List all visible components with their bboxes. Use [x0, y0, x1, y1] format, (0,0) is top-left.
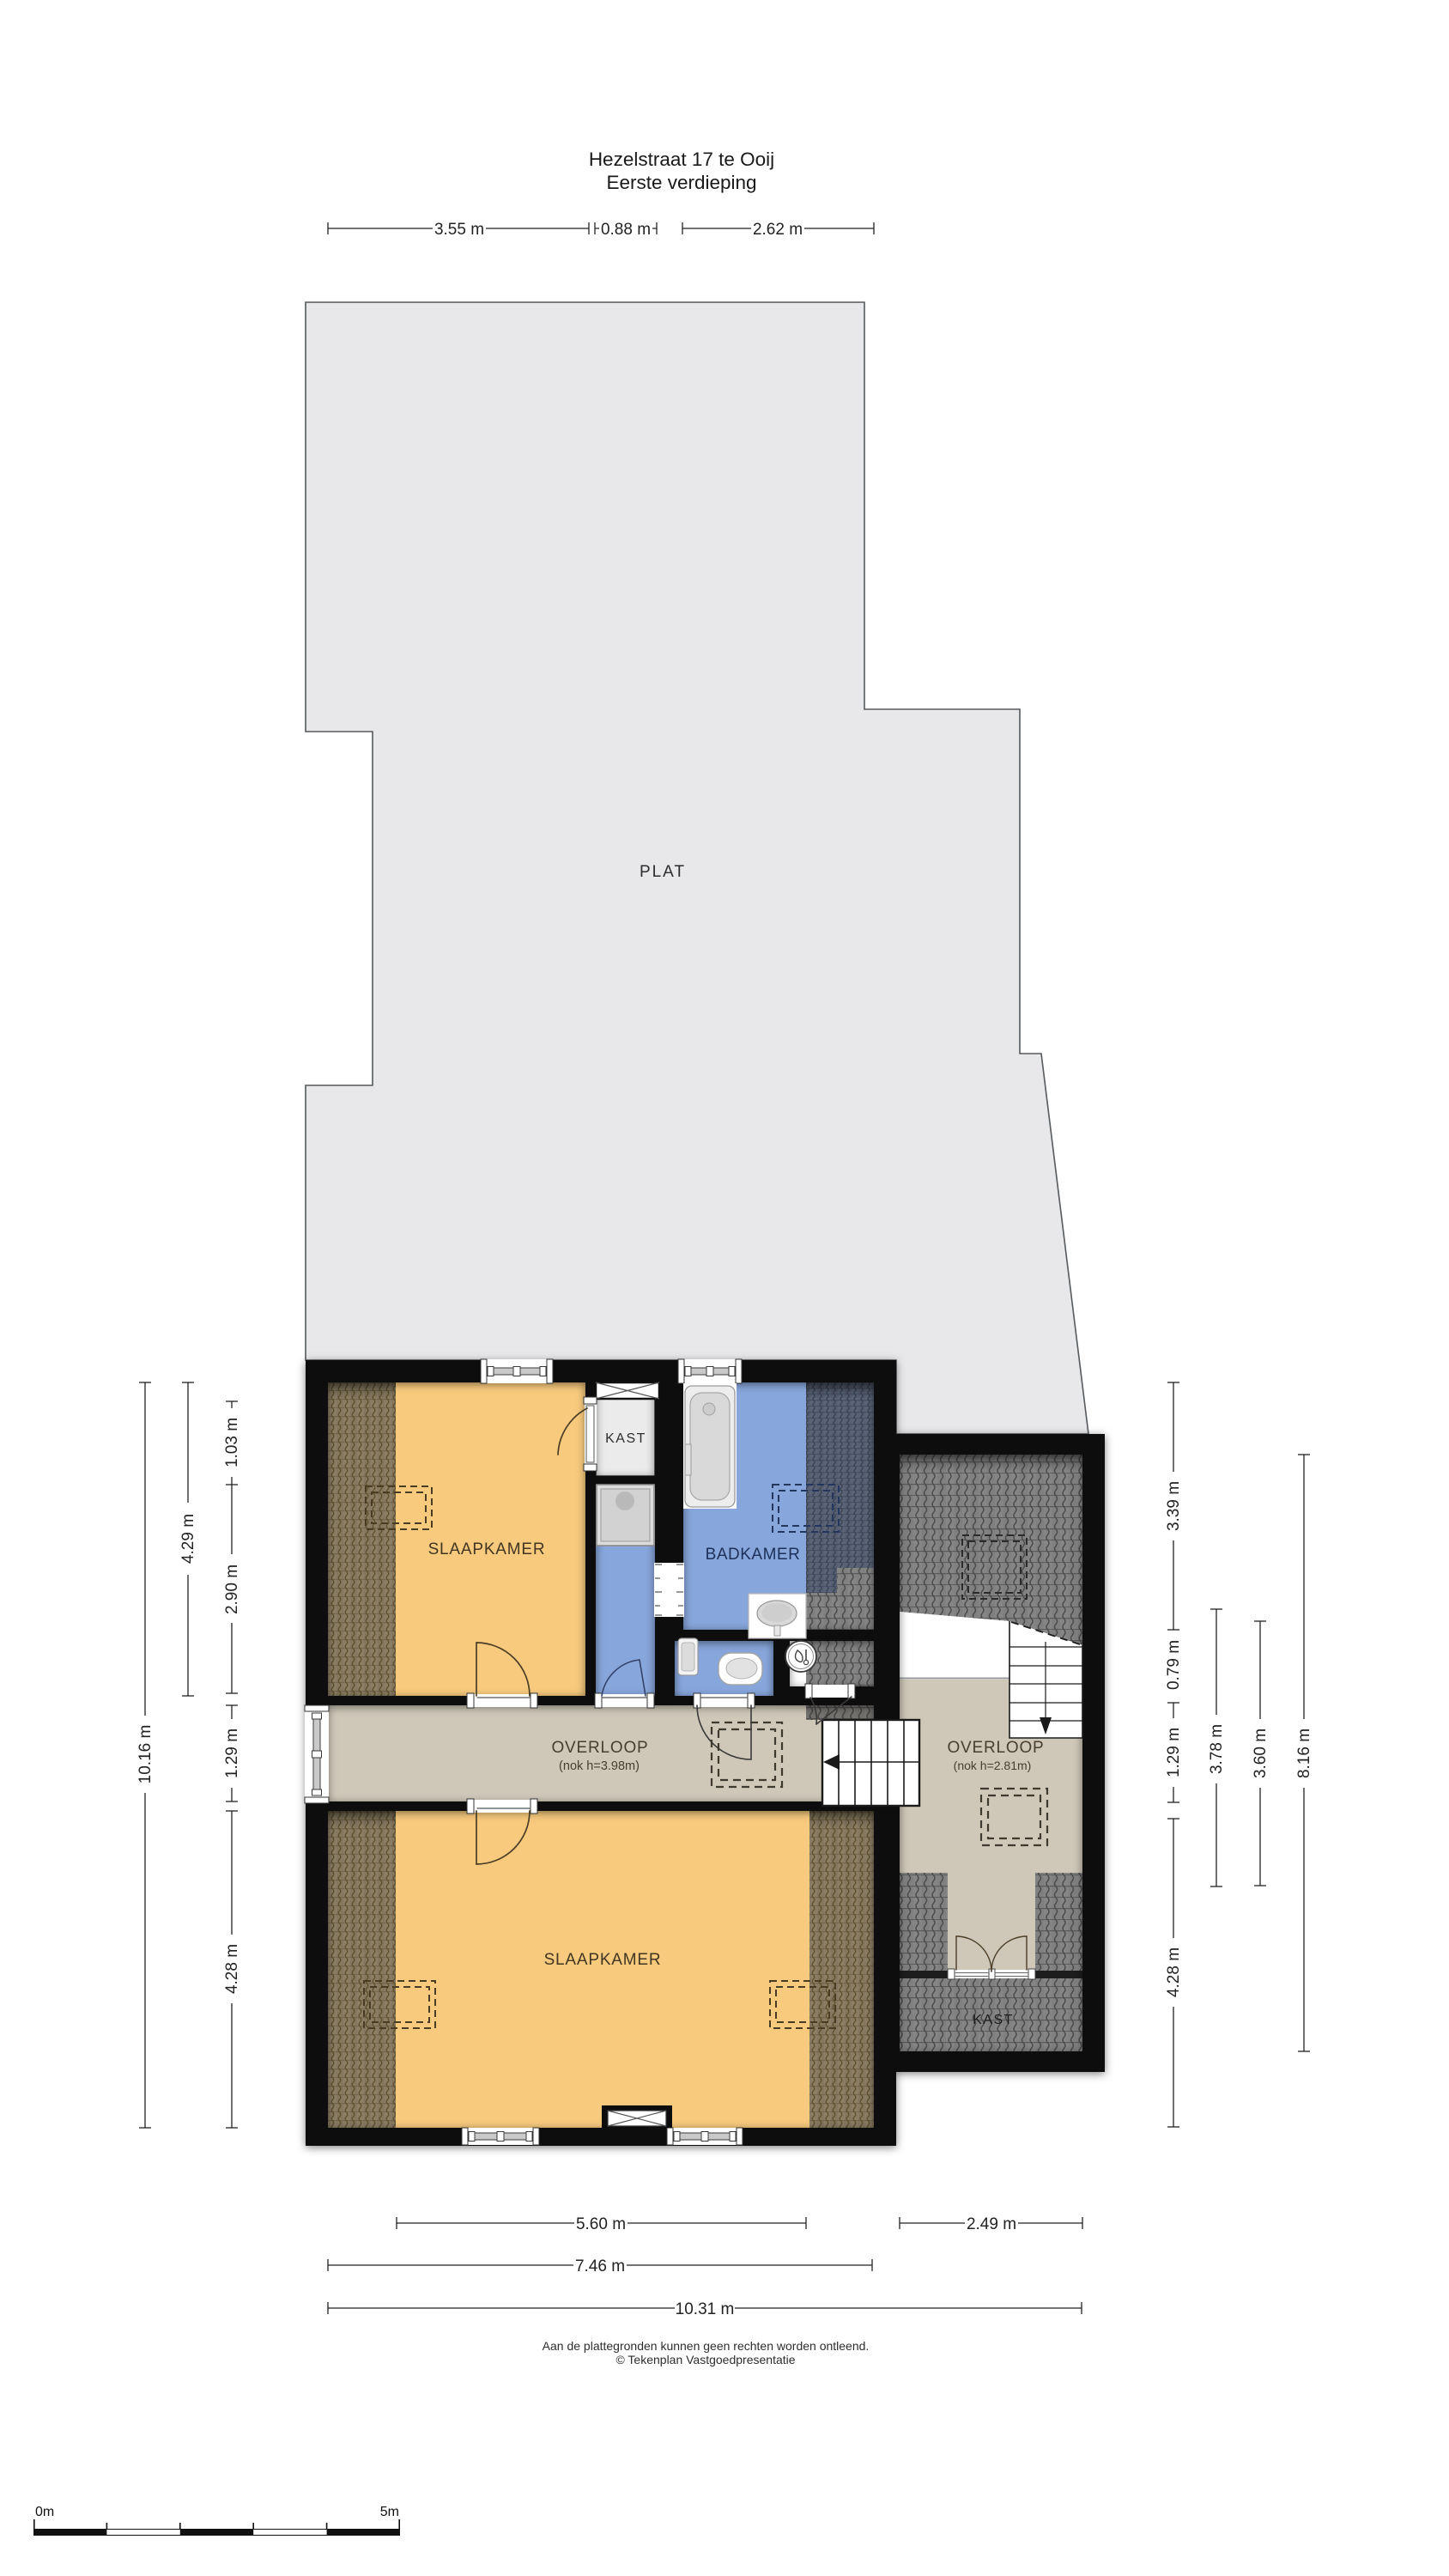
svg-text:7.46 m: 7.46 m	[575, 2257, 625, 2275]
svg-text:KAST: KAST	[605, 1431, 646, 1446]
svg-text:8.16 m: 8.16 m	[1295, 1728, 1313, 1778]
svg-text:1.29 m: 1.29 m	[1165, 1728, 1183, 1777]
svg-text:KAST: KAST	[973, 2013, 1014, 2027]
svg-text:OVERLOOP: OVERLOOP	[947, 1739, 1044, 1757]
svg-text:(nok h=2.81m): (nok h=2.81m)	[954, 1759, 1032, 1772]
svg-text:1.29 m: 1.29 m	[223, 1728, 241, 1778]
svg-text:4.29 m: 4.29 m	[179, 1514, 197, 1564]
svg-text:3.78 m: 3.78 m	[1208, 1724, 1226, 1774]
svg-text:(nok h=3.98m): (nok h=3.98m)	[559, 1759, 640, 1773]
svg-text:BADKAMER: BADKAMER	[706, 1546, 801, 1564]
svg-text:5m: 5m	[380, 2505, 399, 2519]
svg-text:0.79 m: 0.79 m	[1165, 1640, 1183, 1690]
svg-text:10.16 m: 10.16 m	[136, 1725, 155, 1784]
svg-text:0m: 0m	[35, 2505, 54, 2519]
svg-text:10.31 m: 10.31 m	[676, 2300, 735, 2318]
svg-text:0.88 m: 0.88 m	[601, 221, 651, 239]
svg-text:SLAAPKAMER: SLAAPKAMER	[544, 1951, 662, 1969]
svg-text:1.03 m: 1.03 m	[223, 1418, 241, 1467]
svg-text:2.90 m: 2.90 m	[223, 1564, 241, 1614]
svg-text:3.55 m: 3.55 m	[434, 221, 484, 239]
svg-text:SLAAPKAMER: SLAAPKAMER	[428, 1540, 546, 1558]
svg-text:2.49 m: 2.49 m	[967, 2215, 1016, 2233]
svg-text:Eerste verdieping: Eerste verdieping	[606, 172, 756, 193]
svg-text:OVERLOOP: OVERLOOP	[551, 1739, 648, 1757]
svg-text:© Tekenplan Vastgoedpresentati: © Tekenplan Vastgoedpresentatie	[615, 2353, 795, 2366]
svg-text:2.62 m: 2.62 m	[753, 221, 803, 239]
svg-text:Aan de plattegronden kunnen ge: Aan de plattegronden kunnen geen rechten…	[543, 2339, 870, 2353]
svg-text:3.39 m: 3.39 m	[1165, 1481, 1183, 1531]
svg-text:PLAT: PLAT	[640, 863, 686, 881]
svg-text:4.28 m: 4.28 m	[223, 1944, 241, 1994]
svg-text:4.28 m: 4.28 m	[1165, 1947, 1183, 1997]
svg-text:Hezelstraat 17 te Ooij: Hezelstraat 17 te Ooij	[589, 149, 774, 170]
svg-text:5.60 m: 5.60 m	[576, 2215, 626, 2233]
svg-text:3.60 m: 3.60 m	[1252, 1728, 1270, 1778]
